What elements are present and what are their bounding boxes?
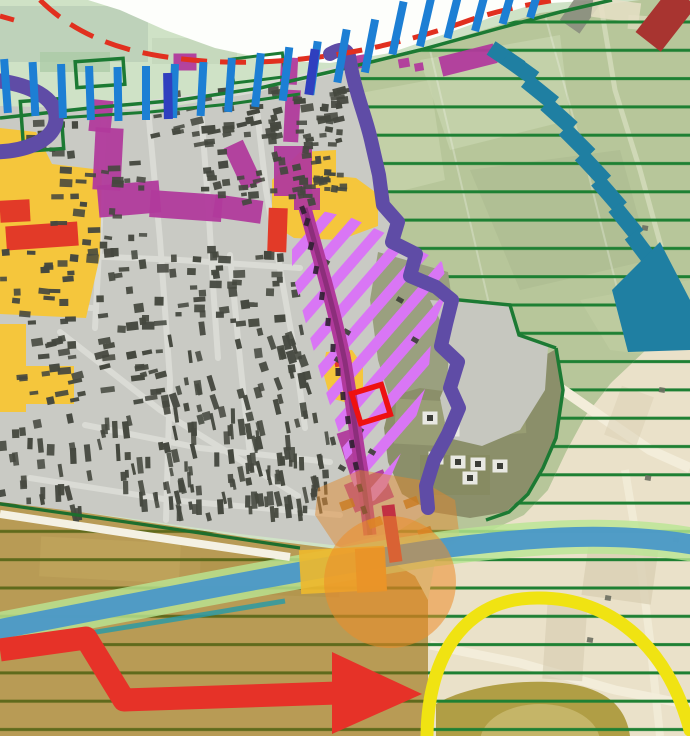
building bbox=[312, 485, 317, 498]
building bbox=[192, 504, 198, 514]
building bbox=[60, 166, 72, 173]
building bbox=[145, 457, 150, 469]
building bbox=[240, 299, 250, 309]
building bbox=[231, 408, 235, 423]
building bbox=[70, 254, 79, 262]
building bbox=[125, 452, 131, 460]
building bbox=[248, 191, 259, 199]
building bbox=[218, 191, 226, 198]
building bbox=[214, 452, 219, 466]
building bbox=[70, 193, 79, 199]
building bbox=[217, 499, 224, 514]
building bbox=[156, 349, 163, 353]
building bbox=[123, 481, 128, 494]
building bbox=[72, 121, 78, 129]
building bbox=[76, 179, 87, 184]
building bbox=[177, 506, 182, 521]
building bbox=[171, 255, 177, 263]
building bbox=[131, 250, 138, 259]
street-building bbox=[330, 344, 335, 352]
street-building bbox=[335, 368, 340, 376]
building bbox=[58, 260, 68, 267]
building bbox=[119, 267, 130, 272]
building bbox=[2, 249, 10, 256]
orange-impact-circle bbox=[324, 516, 456, 648]
red-zone bbox=[0, 199, 31, 223]
building bbox=[139, 233, 147, 237]
building bbox=[62, 276, 74, 283]
building bbox=[324, 178, 331, 183]
building bbox=[193, 297, 205, 303]
building bbox=[319, 133, 326, 138]
building bbox=[126, 321, 139, 331]
red-zone bbox=[267, 208, 288, 253]
building bbox=[187, 268, 196, 275]
building bbox=[331, 101, 340, 108]
building bbox=[277, 277, 283, 283]
building bbox=[328, 142, 337, 147]
street-building bbox=[340, 392, 346, 400]
building bbox=[244, 132, 251, 138]
building bbox=[67, 341, 76, 349]
building bbox=[139, 317, 146, 325]
building bbox=[256, 170, 263, 176]
building bbox=[313, 175, 319, 182]
building bbox=[238, 185, 248, 191]
building bbox=[336, 129, 343, 135]
building bbox=[322, 470, 329, 479]
building bbox=[201, 187, 209, 192]
building bbox=[47, 444, 55, 456]
blue-tick-icon bbox=[142, 66, 150, 120]
building bbox=[100, 242, 108, 249]
building bbox=[204, 141, 213, 147]
building bbox=[293, 453, 297, 468]
building bbox=[55, 221, 68, 225]
building bbox=[233, 270, 245, 278]
building bbox=[26, 497, 31, 504]
building bbox=[67, 271, 74, 276]
building bbox=[324, 187, 330, 191]
building bbox=[27, 251, 36, 255]
building bbox=[254, 348, 263, 359]
building bbox=[249, 463, 254, 473]
building bbox=[60, 179, 73, 188]
building bbox=[33, 120, 45, 127]
map-canvas[interactable] bbox=[0, 0, 690, 736]
building bbox=[222, 179, 230, 187]
building bbox=[135, 364, 144, 369]
building bbox=[255, 255, 263, 260]
building bbox=[296, 120, 307, 125]
street-building bbox=[345, 416, 351, 425]
building bbox=[112, 421, 118, 438]
building bbox=[19, 427, 26, 436]
building bbox=[210, 252, 217, 261]
building bbox=[108, 165, 121, 171]
building bbox=[203, 167, 212, 174]
building bbox=[315, 156, 322, 164]
building bbox=[326, 118, 334, 124]
small-building bbox=[645, 475, 652, 481]
building bbox=[219, 306, 230, 314]
building bbox=[154, 297, 163, 306]
building bbox=[289, 194, 297, 199]
building bbox=[138, 185, 144, 190]
building bbox=[265, 251, 275, 260]
building bbox=[111, 180, 124, 188]
building bbox=[289, 460, 293, 467]
building bbox=[21, 475, 27, 487]
building bbox=[12, 429, 19, 438]
building bbox=[218, 160, 229, 169]
building bbox=[19, 376, 28, 381]
building bbox=[139, 259, 147, 269]
building bbox=[108, 272, 116, 281]
building bbox=[38, 354, 50, 360]
building bbox=[300, 186, 306, 193]
red-zone bbox=[5, 222, 78, 251]
building bbox=[43, 296, 55, 301]
building bbox=[33, 419, 42, 429]
building bbox=[199, 290, 207, 297]
building bbox=[120, 472, 126, 481]
building bbox=[228, 287, 237, 297]
building bbox=[86, 254, 99, 264]
building bbox=[193, 256, 202, 262]
small-building bbox=[605, 595, 612, 601]
building bbox=[44, 262, 53, 268]
building bbox=[96, 295, 104, 302]
building bbox=[223, 431, 230, 444]
building bbox=[331, 185, 339, 193]
planning-map-svg bbox=[0, 0, 690, 736]
building bbox=[37, 459, 46, 469]
building bbox=[184, 461, 188, 471]
building bbox=[296, 129, 304, 134]
building bbox=[113, 214, 122, 218]
building bbox=[200, 310, 206, 317]
building bbox=[303, 194, 312, 198]
building bbox=[109, 208, 116, 215]
small-building bbox=[587, 637, 594, 643]
navy-tick-icon bbox=[163, 73, 173, 119]
building bbox=[241, 192, 247, 196]
building bbox=[41, 371, 50, 377]
building bbox=[133, 303, 144, 313]
building bbox=[271, 272, 282, 278]
building bbox=[324, 169, 331, 176]
building bbox=[279, 166, 288, 175]
building bbox=[217, 149, 227, 155]
village-building-dot bbox=[455, 459, 461, 465]
building bbox=[303, 506, 308, 514]
building bbox=[230, 318, 236, 323]
building bbox=[277, 253, 284, 262]
building bbox=[128, 235, 134, 242]
building bbox=[302, 146, 309, 154]
building bbox=[187, 422, 194, 433]
magenta-zone bbox=[149, 190, 223, 222]
building bbox=[49, 289, 60, 293]
building bbox=[82, 239, 91, 246]
building bbox=[210, 280, 222, 288]
building bbox=[274, 314, 286, 322]
building bbox=[19, 310, 31, 317]
building bbox=[270, 188, 277, 193]
building bbox=[117, 325, 126, 333]
village-building-dot bbox=[467, 475, 473, 481]
building bbox=[126, 286, 133, 294]
building bbox=[245, 495, 251, 507]
building bbox=[85, 173, 96, 178]
building bbox=[12, 298, 20, 304]
building bbox=[58, 484, 65, 495]
building bbox=[49, 363, 60, 372]
building bbox=[340, 183, 348, 189]
building bbox=[124, 178, 130, 183]
building bbox=[337, 173, 344, 178]
building bbox=[190, 285, 197, 290]
building bbox=[65, 316, 76, 321]
building bbox=[157, 264, 169, 273]
blue-tick-icon bbox=[114, 67, 123, 121]
building bbox=[321, 103, 329, 111]
building bbox=[73, 208, 86, 217]
building bbox=[299, 178, 308, 185]
small-building bbox=[659, 387, 666, 393]
building bbox=[67, 150, 75, 159]
building bbox=[51, 194, 63, 199]
building bbox=[280, 456, 286, 466]
building bbox=[59, 299, 68, 306]
building bbox=[254, 439, 257, 453]
building bbox=[88, 227, 101, 233]
village-building-dot bbox=[475, 461, 481, 467]
building bbox=[267, 465, 270, 480]
building bbox=[175, 312, 181, 316]
building bbox=[28, 320, 36, 324]
building bbox=[104, 248, 115, 258]
building bbox=[0, 277, 7, 282]
building bbox=[80, 202, 88, 207]
building bbox=[299, 457, 304, 471]
building bbox=[316, 116, 325, 121]
building bbox=[274, 508, 278, 518]
building bbox=[207, 175, 217, 181]
building bbox=[136, 176, 146, 182]
building bbox=[223, 122, 234, 130]
building bbox=[248, 318, 260, 327]
building bbox=[266, 288, 274, 296]
building bbox=[27, 438, 33, 449]
village-building-dot bbox=[497, 463, 503, 469]
building bbox=[218, 256, 231, 264]
building bbox=[14, 288, 21, 295]
building bbox=[211, 269, 219, 275]
building bbox=[129, 161, 141, 166]
magenta-zone bbox=[398, 58, 410, 69]
street-building bbox=[325, 318, 331, 326]
building bbox=[236, 320, 247, 327]
building bbox=[169, 268, 177, 277]
magenta-zone bbox=[414, 62, 424, 71]
building bbox=[0, 441, 7, 452]
village-building-dot bbox=[427, 415, 433, 421]
building bbox=[196, 486, 202, 496]
